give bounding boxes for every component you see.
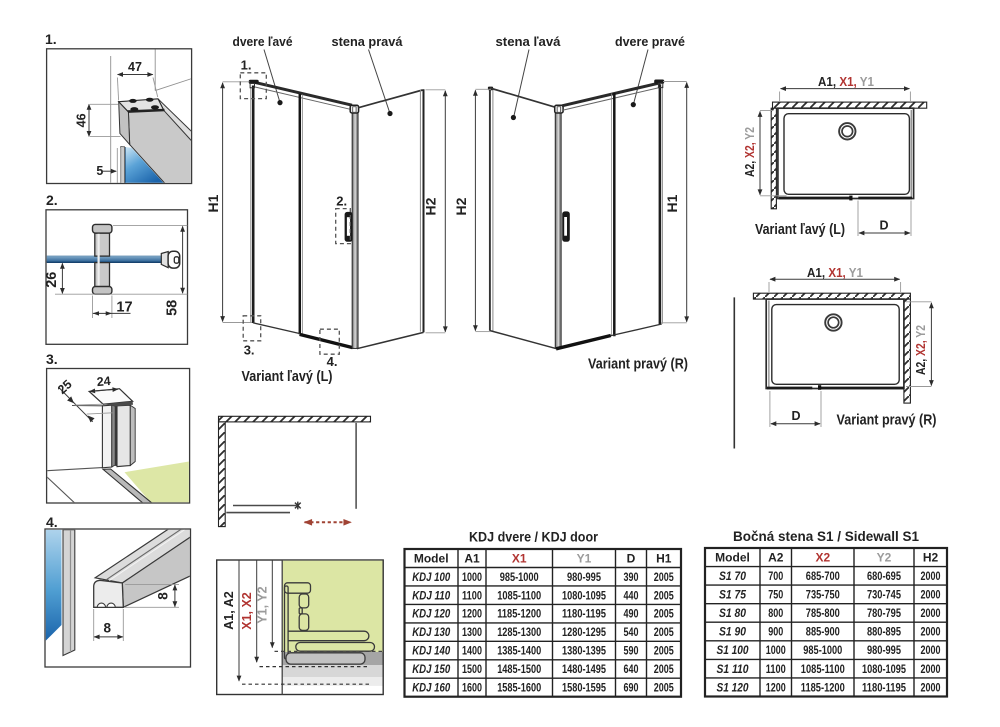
svg-text:Variant pravý (R): Variant pravý (R) [837, 412, 937, 429]
svg-text:X1: X1 [512, 552, 527, 566]
svg-text:S1 80: S1 80 [719, 608, 747, 620]
svg-text:A2, X2, Y2: A2, X2, Y2 [742, 127, 757, 177]
svg-text:A1, A2: A1, A2 [222, 591, 236, 629]
svg-text:1.: 1. [241, 57, 252, 72]
svg-text:H1: H1 [664, 194, 680, 212]
svg-text:1085-1100: 1085-1100 [801, 664, 845, 676]
svg-text:1485-1500: 1485-1500 [497, 664, 541, 676]
svg-text:1085-1100: 1085-1100 [497, 590, 541, 602]
svg-text:880-895: 880-895 [867, 627, 901, 639]
svg-text:490: 490 [624, 609, 639, 621]
svg-text:KDJ 160: KDJ 160 [412, 683, 451, 695]
svg-text:KDJ 100: KDJ 100 [412, 572, 451, 584]
svg-text:1080-1095: 1080-1095 [562, 590, 606, 602]
svg-text:1200: 1200 [766, 682, 786, 694]
svg-text:2.: 2. [46, 192, 58, 208]
svg-text:S1 120: S1 120 [717, 682, 750, 694]
svg-text:3.: 3. [46, 351, 58, 367]
svg-text:S1 70: S1 70 [719, 571, 747, 583]
svg-text:1500: 1500 [462, 664, 482, 676]
svg-text:D: D [627, 552, 636, 566]
svg-text:4.: 4. [46, 514, 58, 530]
svg-text:KDJ dvere / KDJ door: KDJ dvere / KDJ door [469, 530, 599, 545]
svg-text:8: 8 [104, 621, 112, 636]
svg-text:S1 90: S1 90 [719, 627, 747, 639]
svg-text:H1: H1 [656, 552, 672, 566]
svg-text:S1 110: S1 110 [717, 664, 750, 676]
svg-text:1400: 1400 [462, 646, 482, 658]
svg-text:Variant pravý (R): Variant pravý (R) [588, 356, 688, 373]
svg-text:Variant ľavý (L): Variant ľavý (L) [755, 221, 845, 238]
svg-text:2005: 2005 [654, 609, 674, 621]
svg-text:1185-1200: 1185-1200 [497, 609, 541, 621]
svg-text:Model: Model [715, 551, 750, 565]
svg-text:1180-1195: 1180-1195 [862, 682, 906, 694]
svg-text:2000: 2000 [921, 627, 941, 639]
svg-text:1180-1195: 1180-1195 [562, 609, 606, 621]
svg-text:680-695: 680-695 [867, 571, 901, 583]
svg-text:1.: 1. [45, 31, 57, 47]
svg-text:H2: H2 [422, 197, 438, 215]
svg-text:KDJ 130: KDJ 130 [412, 627, 451, 639]
svg-text:1580-1595: 1580-1595 [562, 683, 606, 695]
svg-text:A1, X1, Y1: A1, X1, Y1 [818, 74, 874, 89]
svg-text:1380-1395: 1380-1395 [562, 646, 606, 658]
svg-text:KDJ 150: KDJ 150 [412, 664, 451, 676]
svg-text:X2: X2 [815, 551, 830, 565]
svg-text:47: 47 [128, 60, 142, 74]
svg-text:Model: Model [414, 552, 449, 566]
svg-text:1480-1495: 1480-1495 [562, 664, 606, 676]
svg-text:2000: 2000 [921, 645, 941, 657]
svg-text:A2: A2 [768, 551, 784, 565]
svg-text:Y2: Y2 [877, 551, 892, 565]
svg-text:2000: 2000 [921, 682, 941, 694]
svg-text:1200: 1200 [462, 609, 482, 621]
svg-text:730-745: 730-745 [867, 590, 901, 602]
svg-text:2005: 2005 [654, 590, 674, 602]
svg-text:5: 5 [96, 164, 103, 178]
svg-text:885-900: 885-900 [806, 627, 840, 639]
svg-text:KDJ 120: KDJ 120 [412, 609, 451, 621]
svg-text:985-1000: 985-1000 [500, 572, 539, 584]
svg-text:46: 46 [75, 113, 89, 127]
svg-text:KDJ 110: KDJ 110 [412, 590, 451, 602]
svg-text:2000: 2000 [921, 608, 941, 620]
svg-text:3.: 3. [244, 343, 255, 358]
svg-text:17: 17 [116, 299, 132, 315]
svg-text:900: 900 [768, 627, 783, 639]
svg-text:Variant ľavý (L): Variant ľavý (L) [242, 368, 333, 385]
svg-text:H1: H1 [205, 194, 221, 212]
svg-text:58: 58 [164, 300, 180, 316]
svg-text:H2: H2 [923, 551, 939, 565]
svg-text:800: 800 [768, 608, 783, 620]
svg-text:stena pravá: stena pravá [332, 34, 404, 49]
svg-text:440: 440 [624, 590, 639, 602]
svg-text:A2, X2, Y2: A2, X2, Y2 [913, 325, 928, 375]
svg-text:1300: 1300 [462, 627, 482, 639]
svg-text:8: 8 [156, 592, 171, 600]
svg-text:1585-1600: 1585-1600 [497, 683, 541, 695]
svg-text:Y1: Y1 [577, 552, 592, 566]
svg-text:dvere pravé: dvere pravé [615, 34, 685, 49]
svg-text:24: 24 [96, 374, 111, 389]
svg-text:2005: 2005 [654, 683, 674, 695]
svg-text:1280-1295: 1280-1295 [562, 627, 606, 639]
svg-text:1000: 1000 [766, 645, 786, 657]
svg-text:2.: 2. [336, 193, 347, 208]
svg-text:1080-1095: 1080-1095 [862, 664, 906, 676]
svg-text:2005: 2005 [654, 646, 674, 658]
svg-text:4.: 4. [327, 354, 338, 369]
svg-text:1100: 1100 [462, 590, 482, 602]
svg-text:540: 540 [624, 627, 639, 639]
svg-text:980-995: 980-995 [567, 572, 601, 584]
svg-text:Y1, Y2: Y1, Y2 [255, 586, 269, 623]
svg-text:700: 700 [768, 571, 783, 583]
svg-text:D: D [791, 409, 800, 423]
svg-text:750: 750 [768, 590, 783, 602]
svg-text:D: D [879, 219, 888, 233]
svg-text:S1 100: S1 100 [717, 645, 750, 657]
svg-text:1600: 1600 [462, 683, 482, 695]
svg-text:stena ľavá: stena ľavá [496, 34, 562, 49]
svg-text:1100: 1100 [766, 664, 786, 676]
svg-text:KDJ 140: KDJ 140 [412, 646, 451, 658]
svg-text:2005: 2005 [654, 572, 674, 584]
svg-text:785-800: 785-800 [806, 608, 840, 620]
svg-text:640: 640 [624, 664, 639, 676]
svg-text:H2: H2 [453, 197, 469, 215]
svg-text:2000: 2000 [921, 664, 941, 676]
svg-text:2000: 2000 [921, 590, 941, 602]
svg-text:590: 590 [624, 646, 639, 658]
svg-text:690: 690 [624, 683, 639, 695]
svg-text:dvere ľavé: dvere ľavé [233, 34, 293, 49]
svg-text:S1 75: S1 75 [719, 590, 747, 602]
svg-text:X1, X2: X1, X2 [240, 592, 254, 630]
svg-text:2005: 2005 [654, 627, 674, 639]
svg-text:1385-1400: 1385-1400 [497, 646, 541, 658]
svg-text:985-1000: 985-1000 [803, 645, 842, 657]
svg-text:735-750: 735-750 [806, 590, 840, 602]
svg-text:685-700: 685-700 [806, 571, 840, 583]
svg-text:1000: 1000 [462, 572, 482, 584]
svg-text:1185-1200: 1185-1200 [801, 682, 845, 694]
svg-text:26: 26 [44, 272, 60, 288]
svg-text:780-795: 780-795 [867, 608, 901, 620]
svg-text:980-995: 980-995 [867, 645, 901, 657]
svg-text:Bočná stena S1 / Sidewall S1: Bočná stena S1 / Sidewall S1 [733, 529, 919, 544]
svg-text:A1: A1 [464, 552, 480, 566]
svg-text:1285-1300: 1285-1300 [497, 627, 541, 639]
svg-text:A1, X1, Y1: A1, X1, Y1 [807, 265, 863, 280]
svg-text:2000: 2000 [921, 571, 941, 583]
svg-text:2005: 2005 [654, 664, 674, 676]
svg-text:390: 390 [624, 572, 639, 584]
